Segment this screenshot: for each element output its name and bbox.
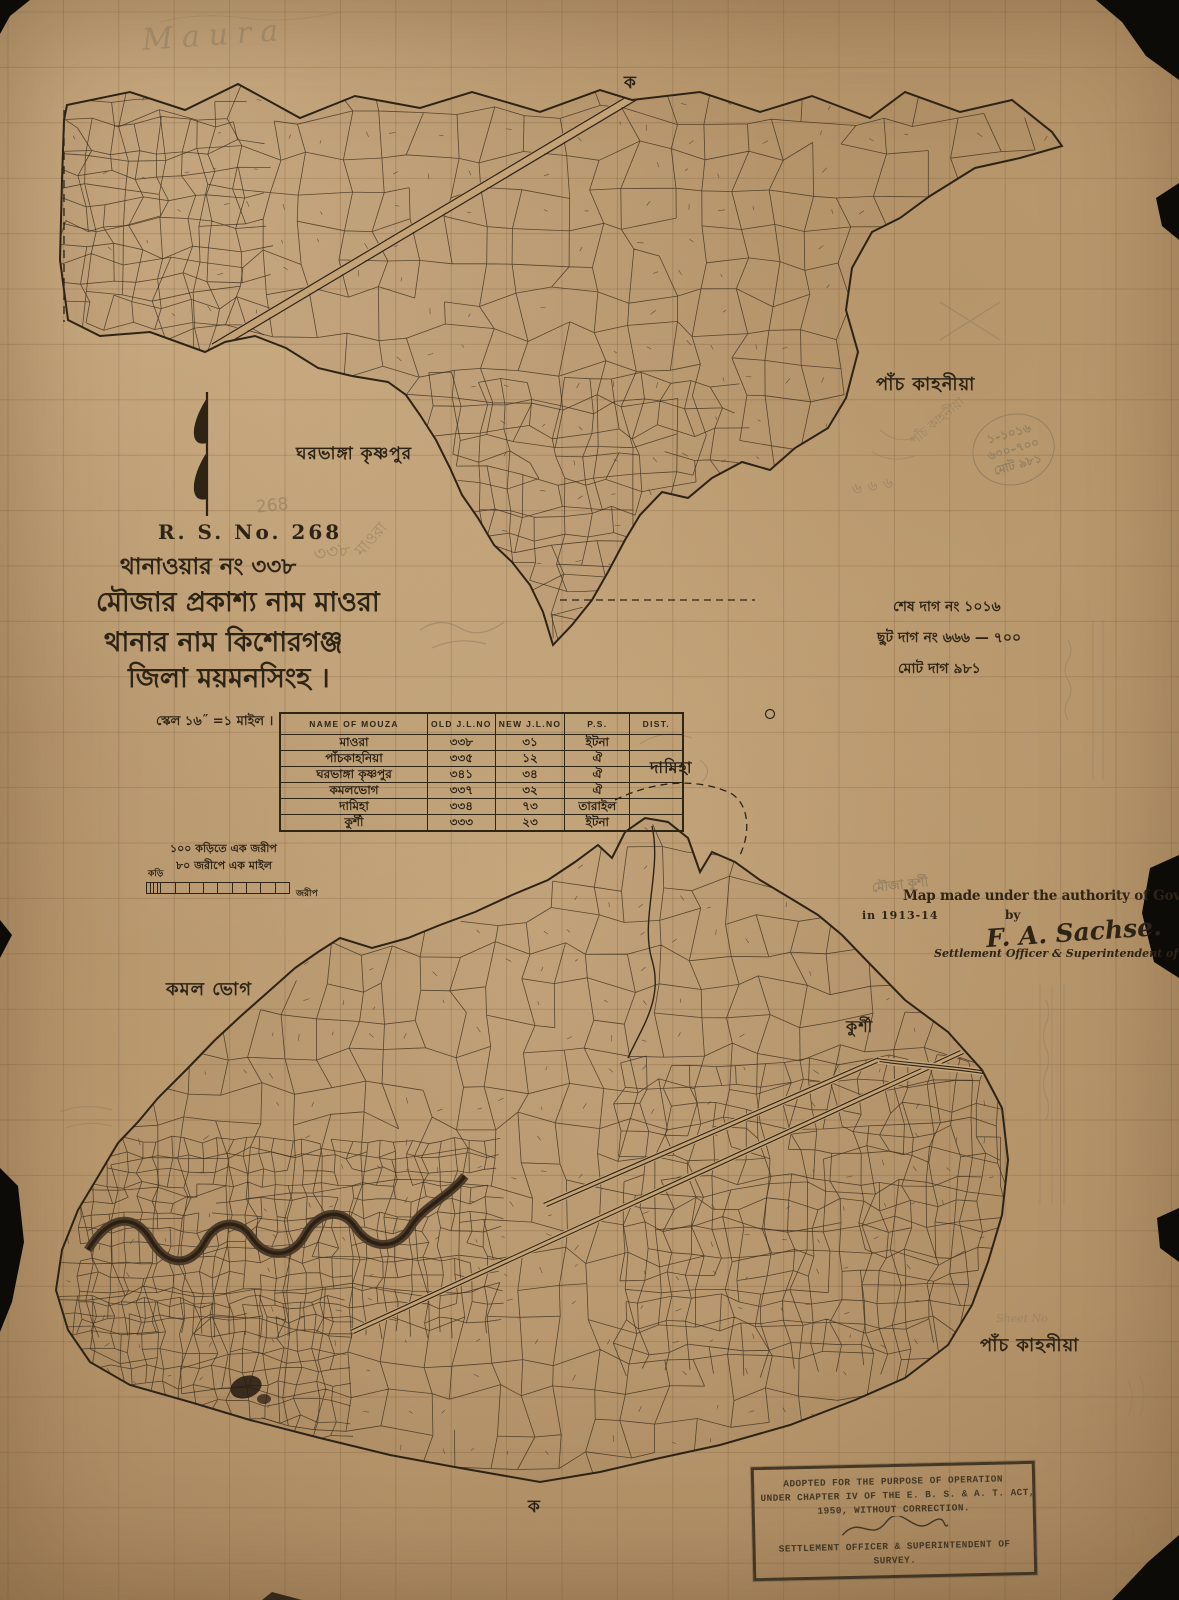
label-damiha: দামিহা — [650, 755, 693, 782]
label-gharbhanga-krishnapur: ঘরভাঙ্গা কৃষ্ণপুর — [296, 441, 412, 469]
cell-old-jl: ৩৩৫ — [428, 751, 496, 767]
stamp-signature-squiggle — [834, 1515, 955, 1542]
authority-line: Map made under the authority of Governme… — [903, 888, 1179, 904]
pencil-268: 268 — [255, 494, 289, 517]
scale-statement: স্কেল ১৬˝ =১ মাইল । — [156, 712, 273, 733]
col-old-jl-no: OLD J.L.NO — [428, 713, 496, 735]
table-row: ঘরভাঙ্গা কৃষ্ণপুর ৩৪১ ৩৪ ঐ — [280, 767, 683, 783]
mouza-name-line: মৌজার প্রকাশ্য নাম মাওরা — [96, 582, 380, 627]
cell-old-jl: ৩৩৪ — [428, 799, 496, 815]
cell-dist — [630, 799, 684, 815]
last-dag-note: শেষ দাগ নং ১০১৬ — [893, 595, 1001, 619]
cell-name: দামিহা — [280, 799, 428, 815]
cell-name: কুর্শী — [280, 815, 428, 832]
surveyor-designation: Settlement Officer & Superintendent of S… — [934, 947, 1179, 960]
pencil-338: ৩৩৮ — [312, 535, 354, 572]
col-dist: DIST. — [630, 713, 684, 735]
label-kamal-bhog: কমল ভোগ — [166, 975, 252, 1006]
cell-new-jl: ৩৪ — [495, 767, 565, 783]
authority-by: by — [1005, 908, 1020, 922]
pencil-sheet-no: Sheet No — [996, 1312, 1048, 1325]
missing-dag-note: ছুট দাগ নং ৬৬৬ — ৭০০ — [877, 626, 1021, 650]
table-row: পাঁচকাহনিয়া ৩৩৫ ১২ ঐ — [280, 751, 683, 767]
authority-year: in 1913-14 — [862, 909, 939, 922]
cell-ps: ইটনা — [565, 735, 630, 751]
scale-unit-right: জরীপ — [296, 886, 318, 901]
cell-name: মাওরা — [280, 735, 428, 751]
cell-old-jl: ৩৩৩ — [428, 815, 496, 832]
cell-dist — [630, 783, 684, 799]
cell-name: পাঁচকাহনিয়া — [280, 751, 428, 767]
cell-dist — [630, 735, 684, 751]
total-dag-note: মোট দাগ ৯৮১ — [898, 657, 981, 681]
table-row: দামিহা ৩৩৪ ৭৩ তারাইল — [280, 799, 683, 815]
cell-new-jl: ৩১ — [495, 735, 565, 751]
table-row: কুর্শী ৩৩৩ ২৩ ইটনা — [280, 815, 683, 832]
col-name-of-mouza: NAME OF MOUZA — [280, 713, 428, 735]
label-panch-kahania-top: পাঁচ কাহনীয়া — [876, 370, 975, 401]
scale-bar — [146, 882, 290, 894]
cell-new-jl: ৭৩ — [495, 799, 565, 815]
cell-ps: ঐ — [565, 783, 630, 799]
cell-old-jl: ৩৩৭ — [428, 783, 496, 799]
cell-ps: তারাইল — [565, 799, 630, 815]
label-panch-kahania-bottom: পাঁচ কাহনীয়া — [980, 1331, 1079, 1362]
cell-ps: ইটনা — [565, 815, 630, 832]
col-new-jl-no: NEW J.L.NO — [495, 713, 565, 735]
cell-new-jl: ১২ — [495, 751, 565, 767]
cell-new-jl: ৩২ — [495, 783, 565, 799]
cell-old-jl: ৩৪১ — [428, 767, 496, 783]
col-ps: P.S. — [565, 713, 630, 735]
table-row: মাওরা ৩৩৮ ৩১ ইটনা — [280, 735, 683, 751]
district-line: জিলা ময়মনসিংহ । — [128, 658, 330, 703]
scale-unit-left: কড়ি — [148, 866, 163, 881]
survey-map-sheet: Maura ক ক R. S. No. 268 থানাওয়ার নং ৩৩৮… — [0, 0, 1179, 1600]
adoption-stamp: ADOPTED FOR THE PURPOSE OF OPERATION UND… — [751, 1461, 1038, 1581]
cell-dist — [630, 815, 684, 832]
scale-note-bottom: ৮০ জরীপে এক মাইল — [176, 857, 272, 876]
orientation-mark-bottom: ক — [528, 1494, 540, 1522]
cell-new-jl: ২৩ — [495, 815, 565, 832]
cell-name: ঘরভাঙ্গা কৃষ্ণপুর — [280, 767, 428, 783]
orientation-mark-top: ক — [624, 70, 636, 98]
table-header-row: NAME OF MOUZA OLD J.L.NO NEW J.L.NO P.S.… — [280, 713, 683, 735]
cell-old-jl: ৩৩৮ — [428, 735, 496, 751]
cell-ps: ঐ — [565, 767, 630, 783]
table-row: কমলভোগ ৩৩৭ ৩২ ঐ — [280, 783, 683, 799]
cell-name: কমলভোগ — [280, 783, 428, 799]
cell-ps: ঐ — [565, 751, 630, 767]
mouza-table: NAME OF MOUZA OLD J.L.NO NEW J.L.NO P.S.… — [279, 712, 684, 832]
label-kurshi: কুর্শী — [846, 1014, 873, 1041]
